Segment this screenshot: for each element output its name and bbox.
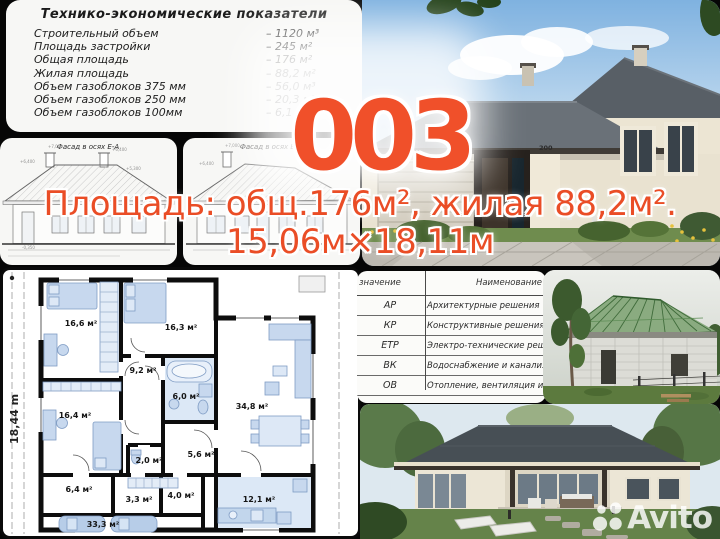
- avito-watermark: Avito: [592, 500, 712, 536]
- svg-text:+5,300: +5,300: [126, 166, 141, 171]
- legend-col1-header: значение: [357, 278, 425, 288]
- room-area-label: 34,8 м²: [236, 402, 269, 411]
- legend-row: ОВОтопление, вентиляция и к: [357, 376, 546, 396]
- plan-side-dimension: 18,44 m: [8, 394, 21, 444]
- legend-row: АРАрхитектурные решения: [357, 296, 546, 316]
- legend-header-row: значение Наименование: [357, 271, 546, 296]
- legend-code: ОВ: [357, 380, 423, 391]
- legend-name: Электро-технические реше: [423, 341, 546, 351]
- house-number: 200: [539, 144, 553, 152]
- svg-text:+7,000: +7,000: [48, 144, 63, 149]
- room-area-label: 2,0 м²: [136, 456, 163, 465]
- facade-label: Фасад в осях Е-А: [57, 143, 120, 151]
- legend-code: ВК: [357, 360, 423, 371]
- room-area-label: 6,0 м²: [173, 392, 200, 401]
- legend-name: Архитектурные решения: [423, 301, 546, 311]
- legend-row: ВКВодоснабжение и канализа: [357, 356, 546, 376]
- spec-label: Площадь застройки: [34, 40, 266, 53]
- room-area-label: 9,2 м²: [130, 366, 157, 375]
- svg-text:+6,400: +6,400: [20, 159, 35, 164]
- area-summary-text: Площадь: общ.176м², жилая 88,2м². 15,06м…: [10, 185, 710, 261]
- tech-panel-title: Технико-экономические показатели: [6, 0, 362, 22]
- legend-row: КРКонструктивные решения: [357, 316, 546, 336]
- room-area-label: 5,6 м²: [188, 450, 215, 459]
- finished-house-photo: Avito: [360, 404, 720, 539]
- room-area-label: 6,4 м²: [66, 485, 93, 494]
- legend-code: АР: [357, 300, 423, 311]
- legend-code: ЕТР: [357, 340, 423, 351]
- svg-text:+7,000: +7,000: [225, 143, 240, 148]
- avito-text: Avito: [627, 500, 712, 536]
- drawings-legend-panel: значение Наименование АРАрхитектурные ре…: [357, 271, 546, 403]
- legend-name: Конструктивные решения: [423, 321, 546, 331]
- room-area-label: 4,0 м²: [168, 491, 195, 500]
- chimney: [522, 66, 534, 86]
- svg-text:+6,400: +6,400: [199, 161, 214, 166]
- chimney: [634, 48, 647, 66]
- room-area-label: 3,3 м²: [126, 495, 153, 504]
- legend-col2-header: Наименование: [425, 278, 546, 288]
- area-line1: Площадь: общ.176м², жилая 88,2м².: [10, 185, 710, 223]
- spec-label: Объем газоблоков 375 мм: [34, 80, 266, 93]
- spec-label: Общая площадь: [34, 53, 266, 66]
- area-line2: 15,06м×18,11м: [10, 223, 710, 261]
- table-divider: [425, 271, 426, 390]
- spec-label: Строительный объем: [34, 27, 266, 40]
- spec-label: Объем газоблоков 250 мм: [34, 93, 266, 106]
- room-area-label: 16,4 м²: [59, 411, 92, 420]
- construction-photo: [543, 270, 720, 404]
- floor-plan-panel: 18,44 m: [0, 267, 361, 539]
- room-area-label: 16,3 м²: [165, 323, 198, 332]
- legend-row: ЕТРЭлектро-технические реше: [357, 336, 546, 356]
- room-area-label: 33,3 м²: [87, 520, 120, 529]
- legend-code: КР: [357, 320, 423, 331]
- room-area-label: 12,1 м²: [243, 495, 276, 504]
- legend-name: Водоснабжение и канализа: [423, 361, 546, 371]
- svg-text:+6,400: +6,400: [112, 147, 127, 152]
- construction-drawing: [543, 270, 720, 404]
- avito-logo-icon: [592, 501, 626, 535]
- project-number: 003: [268, 90, 492, 182]
- spec-label: Жилая площадь: [34, 67, 266, 80]
- floor-plan-drawing: 18,44 m: [3, 270, 358, 536]
- room-area-label: 16,6 м²: [65, 319, 98, 328]
- legend-name: Отопление, вентиляция и к: [423, 381, 546, 391]
- spec-label: Объем газоблоков 100мм: [34, 106, 266, 119]
